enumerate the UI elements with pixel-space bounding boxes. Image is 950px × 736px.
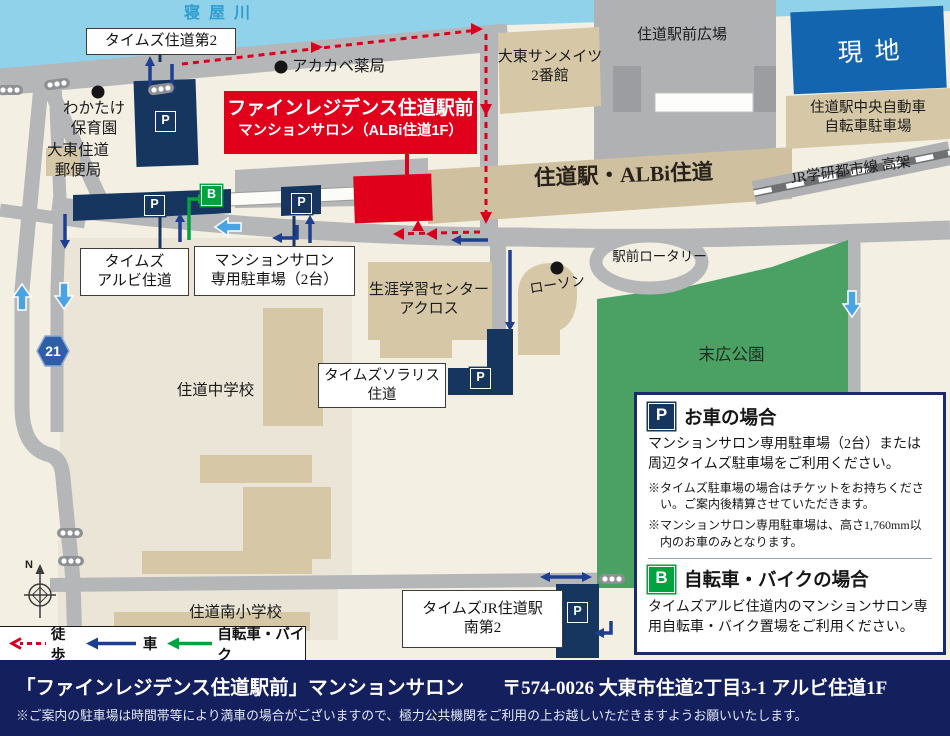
label-wakatake-nursery: わかたけ 保育園 <box>42 99 146 139</box>
footer-line1: 「ファインレジデンス住道駅前」マンションサロン 〒574-0026 大東市住道2… <box>16 671 887 700</box>
label-rotary: 駅前ロータリー <box>602 248 717 265</box>
label-chuo-bicycle-parking: 住道駅中央自動車 自転車駐車場 <box>784 99 950 136</box>
bicycle-arrow-icon <box>167 637 212 650</box>
label-junior-high: 住道中学校 <box>158 381 273 401</box>
label-times-jr-minami2: タイムズJR住道駅 南第2 <box>402 590 563 648</box>
legend-car: 車 <box>86 633 158 654</box>
legend-bicycle: 自転車・バイク <box>167 623 305 665</box>
bicycle-section-body: タイムズアルビ住道内のマンションサロン専用自転車・バイク置場をご利用ください。 <box>648 598 932 639</box>
label-station-plaza: 住道駅前広場 <box>620 26 744 45</box>
parking-icon: P <box>567 602 588 623</box>
bicycle-parking-icon: B <box>201 185 222 206</box>
salon-address: 〒574-0026 大東市住道2丁目3-1 アルビ住道1F <box>502 678 887 699</box>
legend-car-label: 車 <box>143 633 158 654</box>
info-divider <box>648 558 932 559</box>
site-marker: 現地 <box>790 6 946 95</box>
car-arrow-icon <box>86 637 138 650</box>
access-info-box: P お車の場合 マンションサロン専用駐車場（2台）または周辺タイムズ駐車場をご利… <box>634 392 946 655</box>
label-times-suminodo2: タイムズ住道第2 <box>86 28 236 55</box>
label-elementary: 住道南小学校 <box>178 603 293 623</box>
compass-north-label: N <box>25 559 33 571</box>
footer-note: ※ご案内の駐車場は時間帯等により満車の場合がございますので、極力公共機関をご利用… <box>16 705 807 724</box>
parking-icon: P <box>470 368 491 389</box>
salon-building <box>353 174 433 224</box>
salon-callout-line2: マンションサロン（ALBi住道1F） <box>224 121 477 141</box>
bicycle-section-header: B 自転車・バイクの場合 <box>648 566 932 593</box>
parking-icon: P <box>291 193 312 214</box>
walk-arrow-icon <box>8 637 46 650</box>
bicycle-parking-icon: B <box>648 566 675 593</box>
footer-bar: 「ファインレジデンス住道駅前」マンションサロン 〒574-0026 大東市住道2… <box>0 660 950 736</box>
car-section-header: P お車の場合 <box>648 403 932 430</box>
parking-icon: P <box>155 111 176 132</box>
car-section-note-1: ※タイムズ駐車場の場合はチケットをお持ちください。ご案内後精算させていただきます… <box>648 480 932 514</box>
river-label: 寝屋川 <box>184 4 259 24</box>
salon-callout: ファインレジデンス住道駅前 マンションサロン（ALBi住道1F） <box>224 91 477 154</box>
label-sunmates: 大東サンメイツ 2番館 <box>492 48 608 86</box>
label-post-office: 大東住道 郵便局 <box>26 141 130 181</box>
salon-name: 「ファインレジデンス住道駅前」マンションサロン <box>16 678 464 699</box>
car-section-title: お車の場合 <box>684 404 777 430</box>
route-21-badge: 21 <box>37 336 69 366</box>
parking-icon: P <box>144 195 165 216</box>
label-salon-parking: マンションサロン 専用駐車場（2台） <box>194 246 355 296</box>
label-suehiro-park: 末広公園 <box>684 344 779 365</box>
label-akakabe-pharmacy: アカカベ薬局 <box>292 57 385 77</box>
label-across-center: 生涯学習センター アクロス <box>364 281 494 319</box>
legend-bicycle-label: 自転車・バイク <box>217 623 305 665</box>
legend-walk: 徒歩 <box>8 623 76 665</box>
route-21-number: 21 <box>45 343 61 359</box>
legend: 徒歩 車 自転車・バイク <box>0 626 306 660</box>
parking-icon: P <box>648 403 675 430</box>
car-section-note-2: ※マンションサロン専用駐車場は、高さ1,760mm以内のお車のみとなります。 <box>648 517 932 551</box>
car-section-body: マンションサロン専用駐車場（2台）または周辺タイムズ駐車場をご利用ください。 <box>648 435 932 476</box>
access-map: N 21 寝屋川 タイムズ住道第2 アカカベ薬局 わかたけ 保育園 大東住道 郵… <box>0 0 950 736</box>
bicycle-section-title: 自転車・バイクの場合 <box>684 566 869 592</box>
salon-callout-line1: ファインレジデンス住道駅前 <box>224 97 477 121</box>
label-times-albi: タイムズ アルビ住道 <box>80 248 189 296</box>
legend-walk-label: 徒歩 <box>51 623 76 665</box>
label-times-solaris: タイムズソラリス 住道 <box>318 363 446 408</box>
